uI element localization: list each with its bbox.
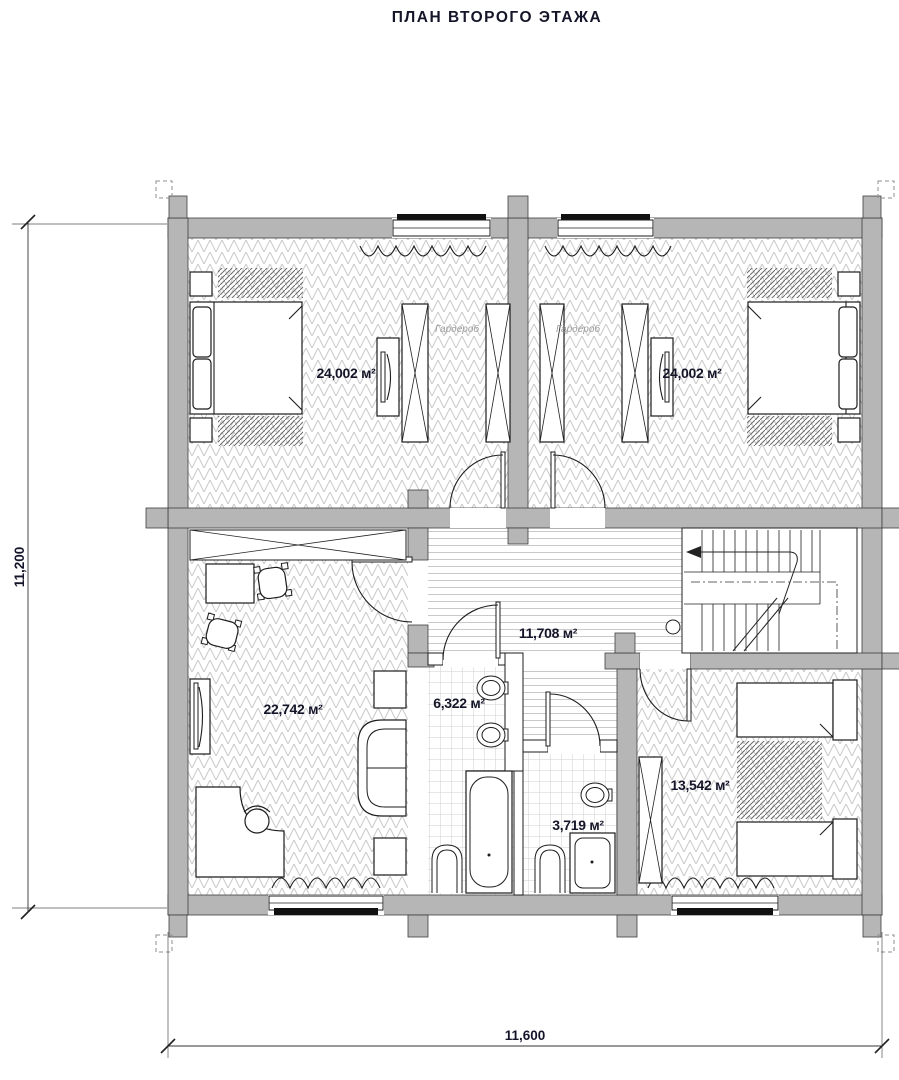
nightstand [190,272,212,296]
sofa [358,720,406,816]
area-label-bathroom: 6,322 м² [433,695,485,711]
area-label-shower-room: 3,719 м² [552,817,604,833]
cabinet [374,838,406,875]
nightstand [838,418,860,442]
plank-floor-corridor [523,665,617,740]
rug [747,416,832,446]
tv-study [190,679,210,754]
nightstand [190,418,212,442]
area-label-bedroom-small: 13,542 м² [670,777,730,793]
dimension-label-left: 11,200 [12,547,27,588]
staircase [666,528,857,653]
bathtub [466,771,512,893]
rug [218,416,303,446]
dimension-label-bottom: 11,600 [505,1028,546,1043]
newel-post [666,620,680,634]
rug [737,741,822,819]
cabinet [374,671,406,708]
area-label-bedroom-right: 24,002 м² [662,365,722,381]
armchair [254,563,292,600]
wardrobe-cabinet [402,304,428,442]
wardrobe-label-right: Гардероб [556,323,600,335]
rug [218,268,303,298]
drawing-title: ПЛАН ВТОРОГО ЭТАЖА [392,9,603,26]
desk-chair [245,809,269,833]
area-label-study: 22,742 м² [263,701,323,717]
shower-tray [570,833,615,893]
wardrobe-cabinet [639,757,662,883]
rug [747,268,832,298]
floor-plan-drawing: ПЛАН ВТОРОГО ЭТАЖА 24,002 м² 24,002 м² Г… [0,0,899,1080]
closet-band-study [190,530,406,560]
area-label-bedroom-left: 24,002 м² [316,365,376,381]
wardrobe-cabinet [622,304,648,442]
wardrobe-cabinet [486,304,510,442]
table [206,564,254,603]
double-bed-left [190,302,302,414]
single-bed-top [737,680,857,740]
single-bed-bottom [737,819,857,879]
wardrobe-label-left: Гардероб [435,323,479,335]
double-bed-right [748,302,860,414]
nightstand [838,272,860,296]
floor-plan-page: ПЛАН ВТОРОГО ЭТАЖА 24,002 м² 24,002 м² Г… [0,0,899,1080]
area-label-hall: 11,708 м² [519,625,578,641]
tv-stand-left [377,338,399,416]
